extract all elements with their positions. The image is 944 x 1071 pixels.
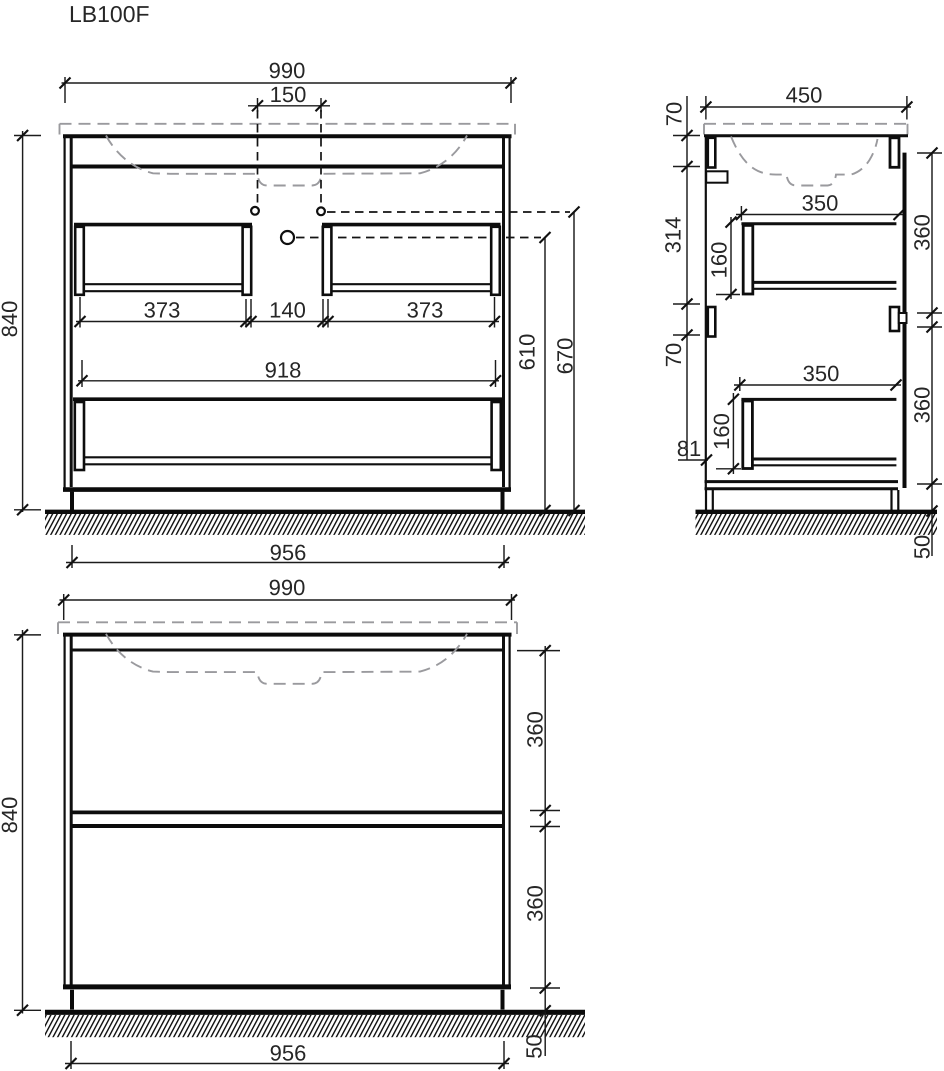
- svg-text:670: 670: [553, 338, 578, 375]
- svg-text:50: 50: [522, 1034, 547, 1058]
- svg-text:81: 81: [677, 436, 701, 461]
- svg-text:70: 70: [661, 343, 686, 367]
- svg-text:373: 373: [144, 298, 181, 323]
- svg-text:314: 314: [661, 217, 686, 254]
- svg-text:360: 360: [910, 214, 935, 251]
- svg-text:373: 373: [407, 298, 444, 323]
- svg-text:450: 450: [786, 83, 823, 108]
- svg-text:840: 840: [0, 301, 22, 338]
- svg-text:956: 956: [270, 1041, 307, 1066]
- svg-text:918: 918: [265, 358, 302, 383]
- svg-text:610: 610: [515, 334, 540, 371]
- svg-text:160: 160: [707, 242, 732, 279]
- svg-text:LB100F: LB100F: [69, 1, 150, 27]
- svg-text:840: 840: [0, 797, 22, 834]
- svg-text:360: 360: [523, 885, 548, 922]
- svg-text:956: 956: [270, 540, 307, 565]
- svg-text:360: 360: [523, 711, 548, 748]
- svg-text:150: 150: [270, 82, 307, 107]
- svg-text:70: 70: [662, 102, 687, 126]
- svg-text:160: 160: [709, 413, 734, 450]
- svg-text:990: 990: [269, 575, 306, 600]
- svg-text:990: 990: [269, 58, 306, 83]
- svg-text:350: 350: [803, 361, 840, 386]
- svg-text:360: 360: [910, 387, 935, 424]
- svg-text:50: 50: [910, 535, 935, 559]
- svg-text:350: 350: [802, 191, 839, 216]
- svg-text:140: 140: [269, 298, 306, 323]
